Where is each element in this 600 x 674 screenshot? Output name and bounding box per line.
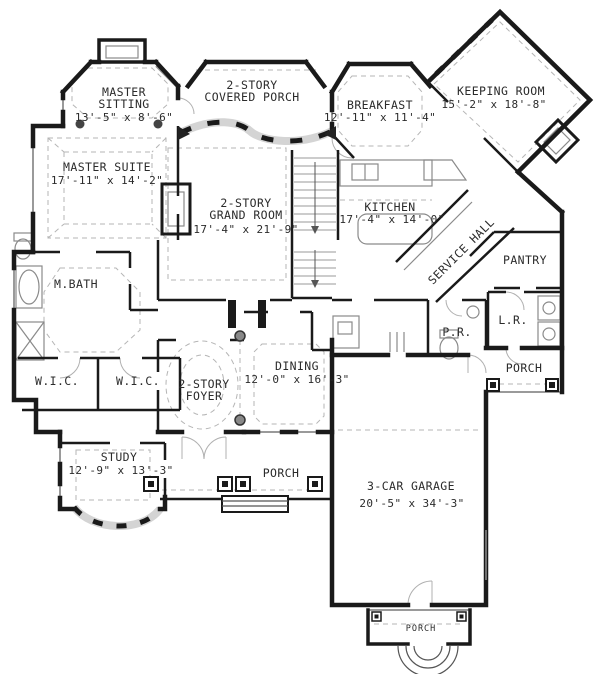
label-garage-dims: 20'-5" x 34'-3" <box>359 497 464 510</box>
label-porch-rear: PORCH <box>406 624 437 634</box>
label-breakfast: BREAKFAST <box>347 98 413 112</box>
floor-plan-drawing: MASTER SITTING 13'-5" x 8'-6" 2-STORY CO… <box>0 0 600 674</box>
windows <box>14 66 562 610</box>
label-porch-side: PORCH <box>506 361 543 375</box>
label-covered-porch-2: COVERED PORCH <box>204 90 299 104</box>
label-grand-room-2: GRAND ROOM <box>209 208 282 222</box>
label-kitchen-dims: 17'-4" x 14'-0" <box>339 213 444 226</box>
label-wic-right: W.I.C. <box>116 374 160 388</box>
label-laundry: L.R. <box>498 313 527 327</box>
label-master-sitting-2: SITTING <box>98 97 149 111</box>
label-dining: DINING <box>275 359 319 373</box>
label-keeping-room: KEEPING ROOM <box>457 84 545 98</box>
label-breakfast-dims: 12'-11" x 11'-4" <box>324 111 436 124</box>
label-powder-room: P.R. <box>442 325 471 339</box>
label-master-suite: MASTER SUITE <box>63 160 151 174</box>
label-foyer-2: FOYER <box>186 389 223 403</box>
label-study: STUDY <box>101 450 138 464</box>
label-master-bath: M.BATH <box>54 277 98 291</box>
steps <box>160 496 486 674</box>
label-kitchen: KITCHEN <box>364 200 415 214</box>
label-pantry: PANTRY <box>503 253 547 267</box>
label-grand-room-dims: 17'-4" x 21'-9" <box>193 223 298 236</box>
label-garage: 3-CAR GARAGE <box>367 479 455 493</box>
label-wic-left: W.I.C. <box>35 374 79 388</box>
label-study-dims: 12'-9" x 13'-3" <box>68 464 173 477</box>
label-porch-front: PORCH <box>263 466 300 480</box>
staircase <box>294 158 336 284</box>
label-dining-dims: 12'-0" x 16'-3" <box>244 373 349 386</box>
label-keeping-room-dims: 15'-2" x 18'-8" <box>441 98 546 111</box>
label-master-sitting-dims: 13'-5" x 8'-6" <box>75 111 173 124</box>
label-master-suite-dims: 17'-11" x 14'-2" <box>51 174 163 187</box>
floor-plan: MASTER SITTING 13'-5" x 8'-6" 2-STORY CO… <box>0 0 600 674</box>
